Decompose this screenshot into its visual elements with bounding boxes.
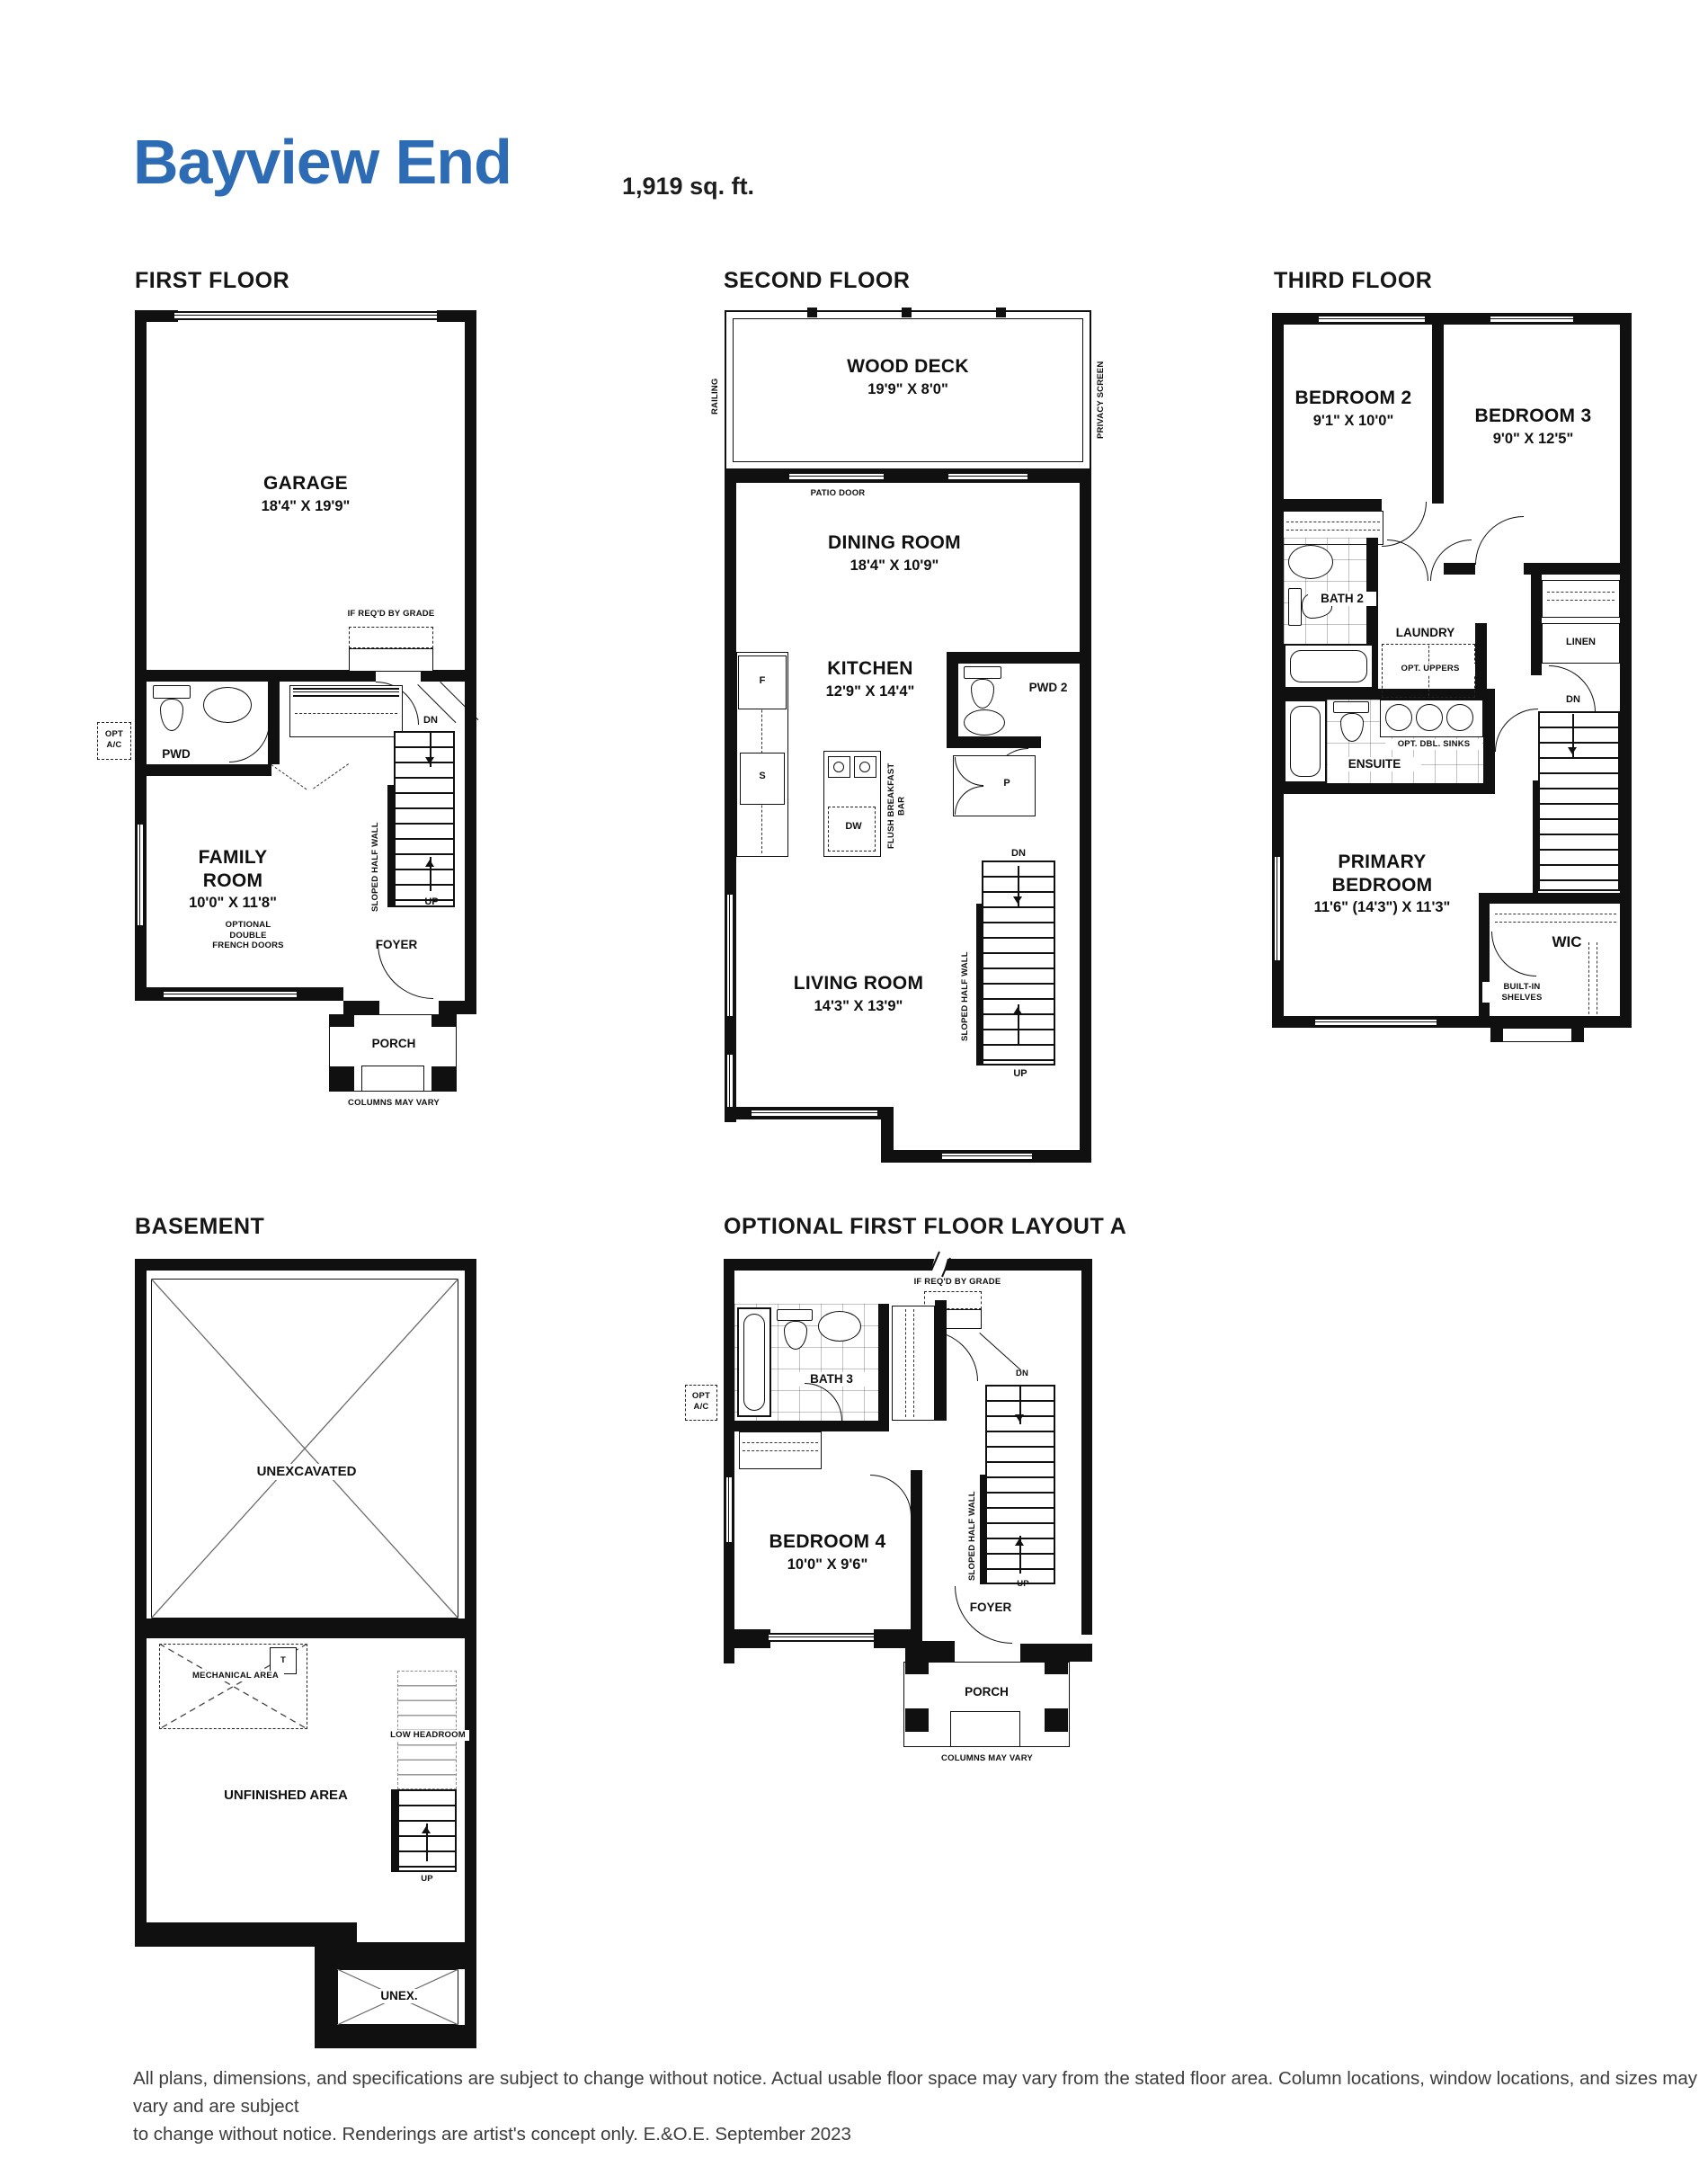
up-arrow-icon <box>430 857 431 891</box>
wall <box>135 764 271 776</box>
closet-rod <box>1547 592 1615 593</box>
window <box>1273 857 1282 960</box>
family-room-label: FAMILY ROOM 10'0" X 11'8" <box>180 846 286 912</box>
railing-post <box>996 308 1006 317</box>
family-name: FAMILY ROOM <box>180 846 286 892</box>
powder2-label: PWD 2 <box>1012 681 1084 695</box>
wall <box>935 1300 947 1421</box>
kitchen-dims: 12'9" X 14'4" <box>789 682 951 700</box>
closet-rod <box>743 1450 818 1451</box>
toilet-icon <box>1288 588 1302 626</box>
wall <box>1620 313 1632 1028</box>
porch-label: PORCH <box>948 1685 1025 1699</box>
stairs-dn-label: DN <box>1561 694 1585 706</box>
unexcavated-label: UNEXCAVATED <box>219 1464 394 1480</box>
opt-ac-label: OPT A/C <box>687 1391 716 1412</box>
porch-post <box>1045 1662 1068 1674</box>
optional-layout-title: OPTIONAL FIRST FLOOR LAYOUT A <box>724 1214 1126 1240</box>
patio-door <box>789 472 884 481</box>
half-wall <box>1533 780 1538 893</box>
unfinished-area-label: UNFINISHED AREA <box>196 1788 376 1804</box>
columns-note: COLUMNS MAY VARY <box>924 1753 1050 1764</box>
stairs-dn-label: DN <box>419 715 442 727</box>
second-floor-title: SECOND FLOOR <box>724 268 910 294</box>
down-arrow-icon <box>1572 714 1574 757</box>
wall <box>947 652 958 748</box>
up-arrow-icon <box>1018 1004 1019 1045</box>
floorplan-sheet: { "title": "Bayview End", "sqft": "1,919… <box>0 0 1708 2158</box>
wall <box>343 1001 379 1014</box>
disclaimer-line2: to change without notice. Renderings are… <box>133 2120 1708 2148</box>
family-dims: 10'0" X 11'8" <box>180 894 286 912</box>
opt-ac-label: OPT A/C <box>99 729 129 750</box>
wall <box>439 1001 476 1014</box>
primary-dims: 11'6" (14'3") X 11'3" <box>1290 898 1474 916</box>
wall <box>135 1259 147 1947</box>
french-doors-note: OPTIONAL DOUBLE FRENCH DOORS <box>212 920 284 951</box>
kitchen-label: KITCHEN 12'9" X 14'4" <box>789 657 951 700</box>
stairs <box>1538 711 1620 891</box>
down-arrow-icon <box>1018 866 1019 906</box>
wall <box>878 1304 889 1431</box>
wall <box>947 652 1091 664</box>
sloped-half-wall-note: SLOPED HALF WALL <box>370 800 381 933</box>
wall <box>135 670 376 682</box>
sink-icon <box>1288 545 1333 579</box>
builtin-shelves-note: BUILT-IN SHELVES <box>1482 982 1561 1003</box>
wall <box>1479 893 1632 904</box>
living-room-label: LIVING ROOM 14'3" X 13'9" <box>764 972 953 1015</box>
bedroom4-dims: 10'0" X 9'6" <box>753 1556 902 1574</box>
wall <box>911 1470 922 1641</box>
half-wall <box>387 785 394 907</box>
wall <box>734 1421 889 1431</box>
bathtub-icon <box>1284 700 1327 783</box>
living-name: LIVING ROOM <box>764 972 953 995</box>
railing-post <box>807 308 817 317</box>
pantry-label: P <box>989 778 1025 789</box>
closet-rod <box>913 1309 914 1417</box>
door-arc <box>378 943 433 999</box>
door-arc <box>1491 932 1536 976</box>
optional-layout-plan: IF REQ'D BY GRADE BATH 3 OPT A/C BEDROOM… <box>719 1259 1097 1776</box>
first-floor-plan: GARAGE 18'4" X 19'9" IF REQ'D BY GRADE P… <box>135 310 476 1119</box>
stairs-up-label: UP <box>421 896 442 908</box>
stairs-up-label: UP <box>417 1874 437 1885</box>
porch-post <box>1045 1708 1068 1732</box>
laundry-label: LAUNDRY <box>1378 626 1472 640</box>
wall <box>724 1259 734 1663</box>
basement-plan: UNEXCAVATED T MECHANICAL AREA UNFINISHED… <box>135 1259 476 2059</box>
toilet-icon <box>160 699 183 731</box>
living-dims: 14'3" X 13'9" <box>764 997 953 1015</box>
door-arc <box>1475 516 1524 565</box>
primary-name: PRIMARY BEDROOM <box>1320 851 1446 896</box>
closet-rod <box>743 1442 818 1443</box>
down-arrow-icon <box>430 733 431 767</box>
garage-dims: 18'4" X 19'9" <box>225 497 387 515</box>
window <box>1319 315 1425 324</box>
mechanical-area-label: MECHANICAL AREA <box>187 1671 284 1681</box>
wall <box>1483 689 1495 794</box>
wall <box>315 2025 476 2048</box>
wall <box>1081 1259 1092 1635</box>
wall <box>1531 575 1542 675</box>
kitchen-name: KITCHEN <box>789 657 951 681</box>
toilet-icon <box>153 685 191 699</box>
porch-post <box>329 1014 354 1027</box>
porch-label: PORCH <box>360 1037 428 1051</box>
bathtub-icon <box>737 1307 771 1417</box>
porch-post <box>329 1066 354 1092</box>
wall <box>1020 1644 1092 1662</box>
toilet-icon <box>777 1309 813 1321</box>
window <box>1315 1018 1437 1027</box>
wall <box>1272 783 1483 794</box>
disclaimer-line1: All plans, dimensions, and specification… <box>133 2064 1708 2120</box>
closet-rod <box>905 1309 906 1417</box>
porch-post <box>905 1662 929 1674</box>
half-wall <box>391 1789 397 1872</box>
faucet-icon <box>833 762 844 772</box>
french-door-leaf <box>313 763 349 789</box>
page-title: Bayview End <box>133 126 512 198</box>
bedroom3-name: BEDROOM 3 <box>1450 405 1616 428</box>
door-arc <box>229 722 270 762</box>
sink-icon <box>964 709 1005 736</box>
dining-name: DINING ROOM <box>800 531 989 555</box>
fridge-label: F <box>738 675 787 687</box>
powder-room-label: PWD <box>149 747 203 762</box>
grade-note: IF REQ'D BY GRADE <box>310 609 472 620</box>
bedroom2-name: BEDROOM 2 <box>1279 387 1428 410</box>
basement-title: BASEMENT <box>135 1214 264 1240</box>
railing-note: RAILING <box>710 353 721 439</box>
sink-icon <box>203 687 252 723</box>
stairs-dn-label: DN <box>1010 1369 1034 1379</box>
half-wall <box>980 1475 985 1584</box>
bedroom3-dims: 9'0" X 12'5" <box>1450 430 1616 448</box>
door-arc <box>1387 539 1428 581</box>
opt-dbl-sinks-note: OPT. DBL. SINKS <box>1385 739 1482 750</box>
bedroom2-label: BEDROOM 2 9'1" X 10'0" <box>1279 387 1428 430</box>
toilet-icon <box>971 679 994 709</box>
stairs <box>394 731 455 907</box>
dining-room-label: DINING ROOM 18'4" X 10'9" <box>800 531 989 575</box>
wic-label: WIC <box>1531 933 1603 952</box>
dishwasher-label: DW <box>832 821 875 833</box>
closet-rod <box>1547 600 1615 601</box>
first-floor-title: FIRST FLOOR <box>135 268 289 294</box>
bedroom3-label: BEDROOM 3 9'0" X 12'5" <box>1450 405 1616 448</box>
flush-bar-note: FLUSH BREAKFAST BAR <box>886 753 907 859</box>
roof-step <box>1502 1028 1572 1042</box>
sloped-half-wall-note: SLOPED HALF WALL <box>967 1473 978 1599</box>
porch-step <box>361 1066 424 1092</box>
x-cross-icon <box>151 1279 458 1618</box>
closet-rod <box>1286 530 1380 531</box>
wall <box>947 736 1041 748</box>
shelf-line <box>1495 914 1616 914</box>
closet <box>1542 580 1620 618</box>
window <box>164 990 297 999</box>
disclaimer: All plans, dimensions, and specification… <box>133 2064 1708 2148</box>
bath3-label: BATH 3 <box>789 1372 874 1387</box>
closet-rod <box>1286 522 1380 522</box>
sink-icon <box>1446 704 1473 731</box>
second-floor-plan: RAILING PRIVACY SCREEN WOOD DECK 19'9" X… <box>719 310 1097 1164</box>
unex-label: UNEX. <box>365 1989 433 2003</box>
wall <box>135 310 178 322</box>
toilet-icon <box>964 666 1001 679</box>
wall <box>1572 1028 1584 1042</box>
stairs-up-label: UP <box>1009 1068 1032 1080</box>
door-arc <box>955 1586 1012 1644</box>
break-line-icon <box>924 1249 956 1280</box>
window <box>136 825 145 925</box>
toilet-icon <box>1333 701 1369 713</box>
square-footage: 1,919 sq. ft. <box>622 173 754 201</box>
wall <box>1479 893 1490 1028</box>
wall <box>1272 499 1382 511</box>
garage-name: GARAGE <box>225 472 387 495</box>
up-arrow-icon <box>1019 1536 1021 1574</box>
sink-icon <box>1416 704 1443 731</box>
window <box>769 1633 875 1642</box>
ensuite-label: ENSUITE <box>1328 757 1421 771</box>
shelf-line <box>295 713 397 714</box>
window <box>1490 315 1573 324</box>
wall <box>725 470 736 1122</box>
faucet-icon <box>859 762 870 772</box>
garage-room-label: GARAGE 18'4" X 19'9" <box>225 472 387 515</box>
sink-icon <box>818 1311 861 1342</box>
primary-bedroom-label: PRIMARY BEDROOM 11'6" (14'3") X 11'3" <box>1290 851 1474 916</box>
window <box>174 311 440 320</box>
window <box>752 1109 877 1118</box>
wall <box>334 1942 476 1969</box>
sink-label: S <box>740 771 785 782</box>
door-arc <box>1430 539 1472 581</box>
sloped-half-wall-note: SLOPED HALF WALL <box>960 929 971 1064</box>
bath2-label: BATH 2 <box>1308 592 1376 606</box>
shelf-line <box>1495 922 1616 923</box>
wall <box>1524 563 1632 575</box>
door-leaf <box>979 1333 1021 1370</box>
stairs-up-label: UP <box>1012 1579 1034 1590</box>
privacy-screen-note: PRIVACY SCREEN <box>1096 342 1107 459</box>
wall <box>724 1259 1092 1271</box>
deck-label: WOOD DECK 19'9" X 8'0" <box>818 355 998 398</box>
grade-door-dashed-box <box>349 627 433 648</box>
door-arc <box>870 1475 912 1516</box>
deck-name: WOOD DECK <box>818 355 998 379</box>
bedroom4-label: BEDROOM 4 10'0" X 9'6" <box>753 1530 902 1574</box>
grade-note: IF REQ'D BY GRADE <box>899 1277 1016 1288</box>
wall <box>465 310 476 1014</box>
sink-icon <box>1385 704 1412 731</box>
wall <box>1490 1028 1502 1042</box>
wall <box>1432 313 1444 504</box>
wall <box>135 1259 476 1271</box>
porch-post <box>905 1708 929 1732</box>
stairs-dn-label: DN <box>1007 848 1030 860</box>
porch-step <box>950 1711 1020 1747</box>
french-door-leaf <box>271 764 307 789</box>
closet-rod <box>1588 942 1589 1019</box>
wall <box>465 1259 476 2048</box>
third-floor-plan: BEDROOM 2 9'1" X 10'0" BEDROOM 3 9'0" X … <box>1272 313 1632 1050</box>
tank-label: T <box>270 1655 297 1666</box>
columns-note: COLUMNS MAY VARY <box>338 1098 449 1109</box>
bedroom2-dims: 9'1" X 10'0" <box>1279 412 1428 430</box>
window <box>725 895 734 1016</box>
patio-door-label: PATIO DOOR <box>796 488 879 499</box>
low-headroom-note: LOW HEADROOM <box>387 1730 469 1741</box>
window <box>942 1152 1032 1161</box>
wall <box>135 1618 476 1638</box>
wall <box>724 1629 770 1648</box>
down-arrow-icon <box>1019 1387 1021 1424</box>
bathtub-icon <box>1284 644 1374 689</box>
wall <box>1080 470 1091 1163</box>
grade-landing <box>349 648 433 672</box>
door-arc <box>1495 709 1538 752</box>
linen-label: LINEN <box>1542 637 1620 648</box>
wall <box>905 1641 955 1662</box>
third-floor-title: THIRD FLOOR <box>1274 268 1432 294</box>
closet-rod <box>1597 942 1597 1019</box>
porch-post <box>431 1066 457 1092</box>
window <box>948 472 1027 481</box>
window <box>725 1477 734 1542</box>
dining-dims: 18'4" X 10'9" <box>800 557 989 575</box>
bedroom4-name: BEDROOM 4 <box>753 1530 902 1554</box>
up-arrow-icon <box>426 1824 428 1861</box>
window <box>293 688 399 697</box>
deck-dims: 19'9" X 8'0" <box>818 380 998 398</box>
half-wall <box>976 904 982 1066</box>
railing-post <box>902 308 912 317</box>
porch-post <box>431 1014 457 1027</box>
wall <box>725 470 1091 483</box>
opt-uppers-note: OPT. UPPERS <box>1385 664 1475 674</box>
